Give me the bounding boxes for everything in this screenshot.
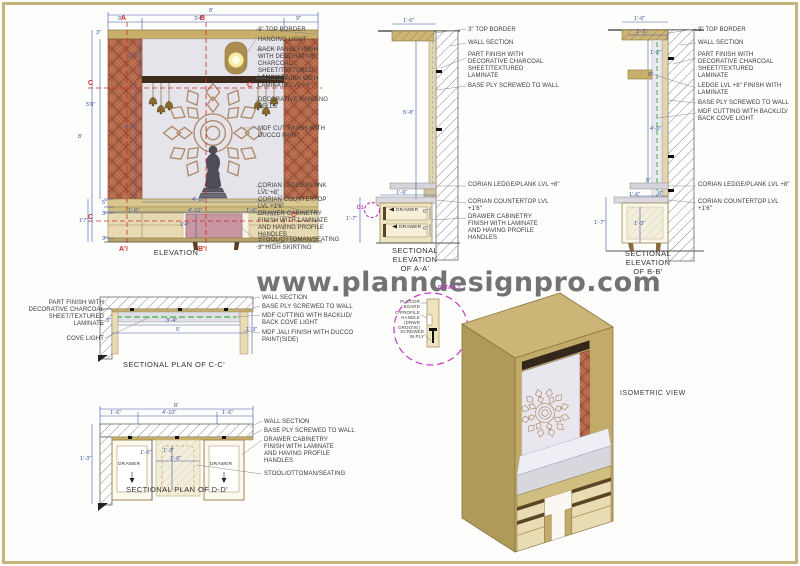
bb-dim-8-low: 8": [646, 178, 651, 184]
aa-label-drawer-cabinetry: DRAWER CABINETRY FINISH WITH LAMINATE AN…: [468, 214, 552, 242]
detail1-label-c-profile: C-PROFILE HANDLE (DRWR GROOVE): [386, 311, 420, 331]
bb-dim-16-top: 1'-6": [634, 16, 645, 22]
bb-label-part-finish: PART FINISH WITH DECORATIVE CHARCOAL SHE…: [698, 52, 780, 80]
cc-label-part-finish: PART FINISH WITH DECORATIVE CHARCOAL SHE…: [26, 300, 104, 328]
cc-label-base-ply: BASE PLY SCREWED TO WALL: [262, 304, 372, 311]
dd-dim-13: 1'-3": [163, 448, 174, 454]
dd-drawer-text-2: DRAWER: [210, 462, 232, 468]
cc-label-mdf-jali: MDF JALI FINISH WITH DUCCO PAINT(SIDE): [262, 330, 362, 344]
aa-title: SECTIONAL ELEVATION OF A-A': [384, 247, 446, 274]
bb-label-top-border: 3" TOP BORDER: [698, 27, 798, 34]
bb-label-base-ply: BASE PLY SCREWED TO WALL: [698, 100, 800, 107]
elev-label-corian-ledge: CORIAN LEDGE/PLANK LVL +8": [258, 183, 334, 197]
elev-label-mdf-cut: MDF CUT FINISH WITH DUCCO PAINT: [258, 126, 334, 140]
elev-label-hanging-light: HANGING LIGHT: [258, 37, 334, 44]
bb-title: SECTIONAL ELEVATION OF B-B': [617, 250, 679, 277]
dd-dim-right: 1'-6": [222, 410, 233, 416]
elev-marker-a2: A': [119, 246, 126, 254]
aa-dim-drawer2: 6": [423, 226, 428, 232]
detail1-title: DETAIL 1: [438, 286, 461, 292]
elev-dim-5: 5": [102, 200, 107, 206]
elev-dim-upper: 1'-2": [128, 53, 139, 59]
cc-dim-34: 3'-4": [166, 318, 177, 324]
bb-label-corian-ledge: CORIAN LEDGE/PLANK LVL +8": [698, 182, 793, 189]
elev-label-bells: DECORATIVE HANGING BELLS: [258, 97, 334, 111]
aa-dim-top: 1'-6": [403, 18, 414, 24]
dd-dim-total: 8': [174, 403, 178, 409]
bb-dim-16-counter: 1'-6": [629, 192, 640, 198]
elev-label-skirting: 3" HIGH SKIRTING: [258, 245, 350, 252]
elev-dim-stool-height: 1'4": [180, 222, 190, 228]
dd-dim-16b: 1'-6": [170, 456, 181, 462]
aa-dim-height: 5'-8": [403, 110, 414, 116]
dd-label-base-ply: BASE PLY SCREWED TO WALL: [264, 428, 376, 435]
elev-dim-58: 5'8": [86, 102, 96, 108]
elev-marker-b2: B': [198, 246, 205, 254]
aa-label-wall-section: WALL SECTION: [468, 40, 564, 47]
dd-dim-depth: 1'-3": [80, 456, 91, 462]
dd-dim-mid: 4'-10": [162, 410, 177, 416]
watermark-text: www.planndesignpro.com: [256, 267, 661, 298]
bb-label-corian-countertop: CORIAN COUNTERTOP LVL +1'6": [698, 199, 793, 213]
elev-marker-a: A: [121, 15, 126, 23]
dd-drawer-text-1: DRAWER: [118, 462, 140, 468]
bb-label-ledge: LEDGE LVL +8" FINISH WITH LAMINATE: [698, 83, 794, 97]
cc-label-wall-section: WALL SECTION: [262, 295, 367, 302]
elev-dim-total-width: 8': [209, 8, 213, 14]
elev-dim-height: 8': [78, 134, 82, 140]
elev-marker-b: B: [200, 15, 205, 23]
elev-dim-right-seg: 1'-6": [246, 208, 257, 214]
dd-label-wall-section: WALL SECTION: [264, 419, 369, 426]
bb-label-wall-section: WALL SECTION: [698, 40, 798, 47]
dd-title: SECTIONAL PLAN OF D-D': [114, 486, 240, 495]
aa-dim-drawer1: 6": [423, 209, 428, 215]
aa-label-corian-ledge: CORIAN LEDGE/PLANK LVL +8": [468, 182, 560, 189]
isometric-drawing: [462, 293, 613, 552]
cc-title: SECTIONAL PLAN OF C-C': [112, 361, 236, 370]
elev-marker-c4: C': [291, 212, 298, 220]
elev-dim-left-seg: 1'-6": [128, 208, 139, 214]
bb-dim-13-top: 1'-3": [636, 29, 647, 35]
cc-dim-3: 3": [106, 318, 111, 324]
elev-marker-c: C: [88, 80, 93, 88]
dd-dim-16a: 1'-6": [140, 450, 151, 456]
cc-dim-13: 1'-3": [246, 327, 257, 333]
aa-label-corian-countertop: CORIAN COUNTERTOP LVL +1'6": [468, 199, 563, 213]
aa-drawer-text-2: DRAWER: [399, 225, 421, 231]
stool: [186, 214, 242, 250]
iso-title: ISOMETRIC VIEW: [620, 390, 686, 398]
aa-dim-counter: 1'-6": [396, 190, 407, 196]
aa-drawer-text-1: DRAWER: [396, 208, 418, 214]
detail1-label-screwed: SCREWED IN PLY: [398, 330, 424, 340]
bb-dim-13-cab: 1'-3": [634, 221, 645, 227]
section-bb-drawing: [606, 22, 704, 261]
aa-detail-marker-d1: D1: [357, 206, 364, 212]
bb-dim-8-ledge: 8": [648, 72, 653, 78]
detail1-label-ply-board: PLY/CDR BOARD: [392, 300, 420, 310]
cc-label-cove-light: COVE LIGHT: [58, 336, 104, 343]
elev-marker-c2: C': [247, 82, 254, 90]
aa-dim-cab-height: 1'-7": [346, 216, 357, 222]
elev-dim-47: 4'-7": [124, 124, 135, 130]
aa-label-top-border: 3" TOP BORDER: [468, 27, 564, 34]
dd-label-drawer-cabinetry: DRAWER CABINETRY FINISH WITH LAMINATE AN…: [264, 437, 346, 465]
dd-dim-left: 1'-6": [110, 410, 121, 416]
elev-marker-c3: C: [88, 214, 93, 222]
hanging-light-icon: [225, 42, 247, 74]
elev-dim-3a: 3": [102, 211, 107, 217]
elev-dim-mid-seg: 4'-10": [188, 208, 203, 214]
elev-dim-3b: 3": [102, 236, 107, 242]
bb-dim-6: 6": [658, 191, 663, 197]
cc-dim-5: 5': [176, 327, 180, 333]
bb-dim-17: 1'-7": [594, 220, 605, 226]
cad-sheet: www.planndesignpro.com 3" TOP BORDERHANG…: [0, 0, 800, 566]
cc-label-mdf-cutting: MDF CUTTING WITH BACKLID/ BACK COVE LIGH…: [262, 313, 362, 327]
aa-label-part-finish: PART FINISH WITH DECORATIVE CHARCOAL SHE…: [468, 52, 548, 80]
elev-label-stool: STOOL/OTTOMAN/SEATING: [258, 237, 350, 244]
elev-label-ledge: LEDGE FINISH WITH LAMINATE LVL +8": [258, 76, 334, 90]
elev-dim-border: 3": [96, 30, 101, 36]
elev-dim-right-col: 9": [296, 16, 301, 22]
bb-dim-40: 4'-0": [650, 126, 661, 132]
aa-label-base-ply: BASE PLY SCREWED TO WALL: [468, 83, 570, 90]
elev-label-corian-countertop: CORIAN COUNTERTOP LVL +1'6": [258, 197, 334, 211]
bb-dim-12: 1'-2": [650, 50, 661, 56]
elev-dim-ledge-width: 4'-10": [192, 197, 207, 203]
dd-label-stool: STOOL/OTTOMAN/SEATING: [264, 471, 376, 478]
elev-label-top-border: 3" TOP BORDER: [258, 27, 334, 34]
bb-label-mdf-cutting: MDF CUTTING WITH BACKLID/ BACK COVE LIGH…: [698, 109, 800, 123]
